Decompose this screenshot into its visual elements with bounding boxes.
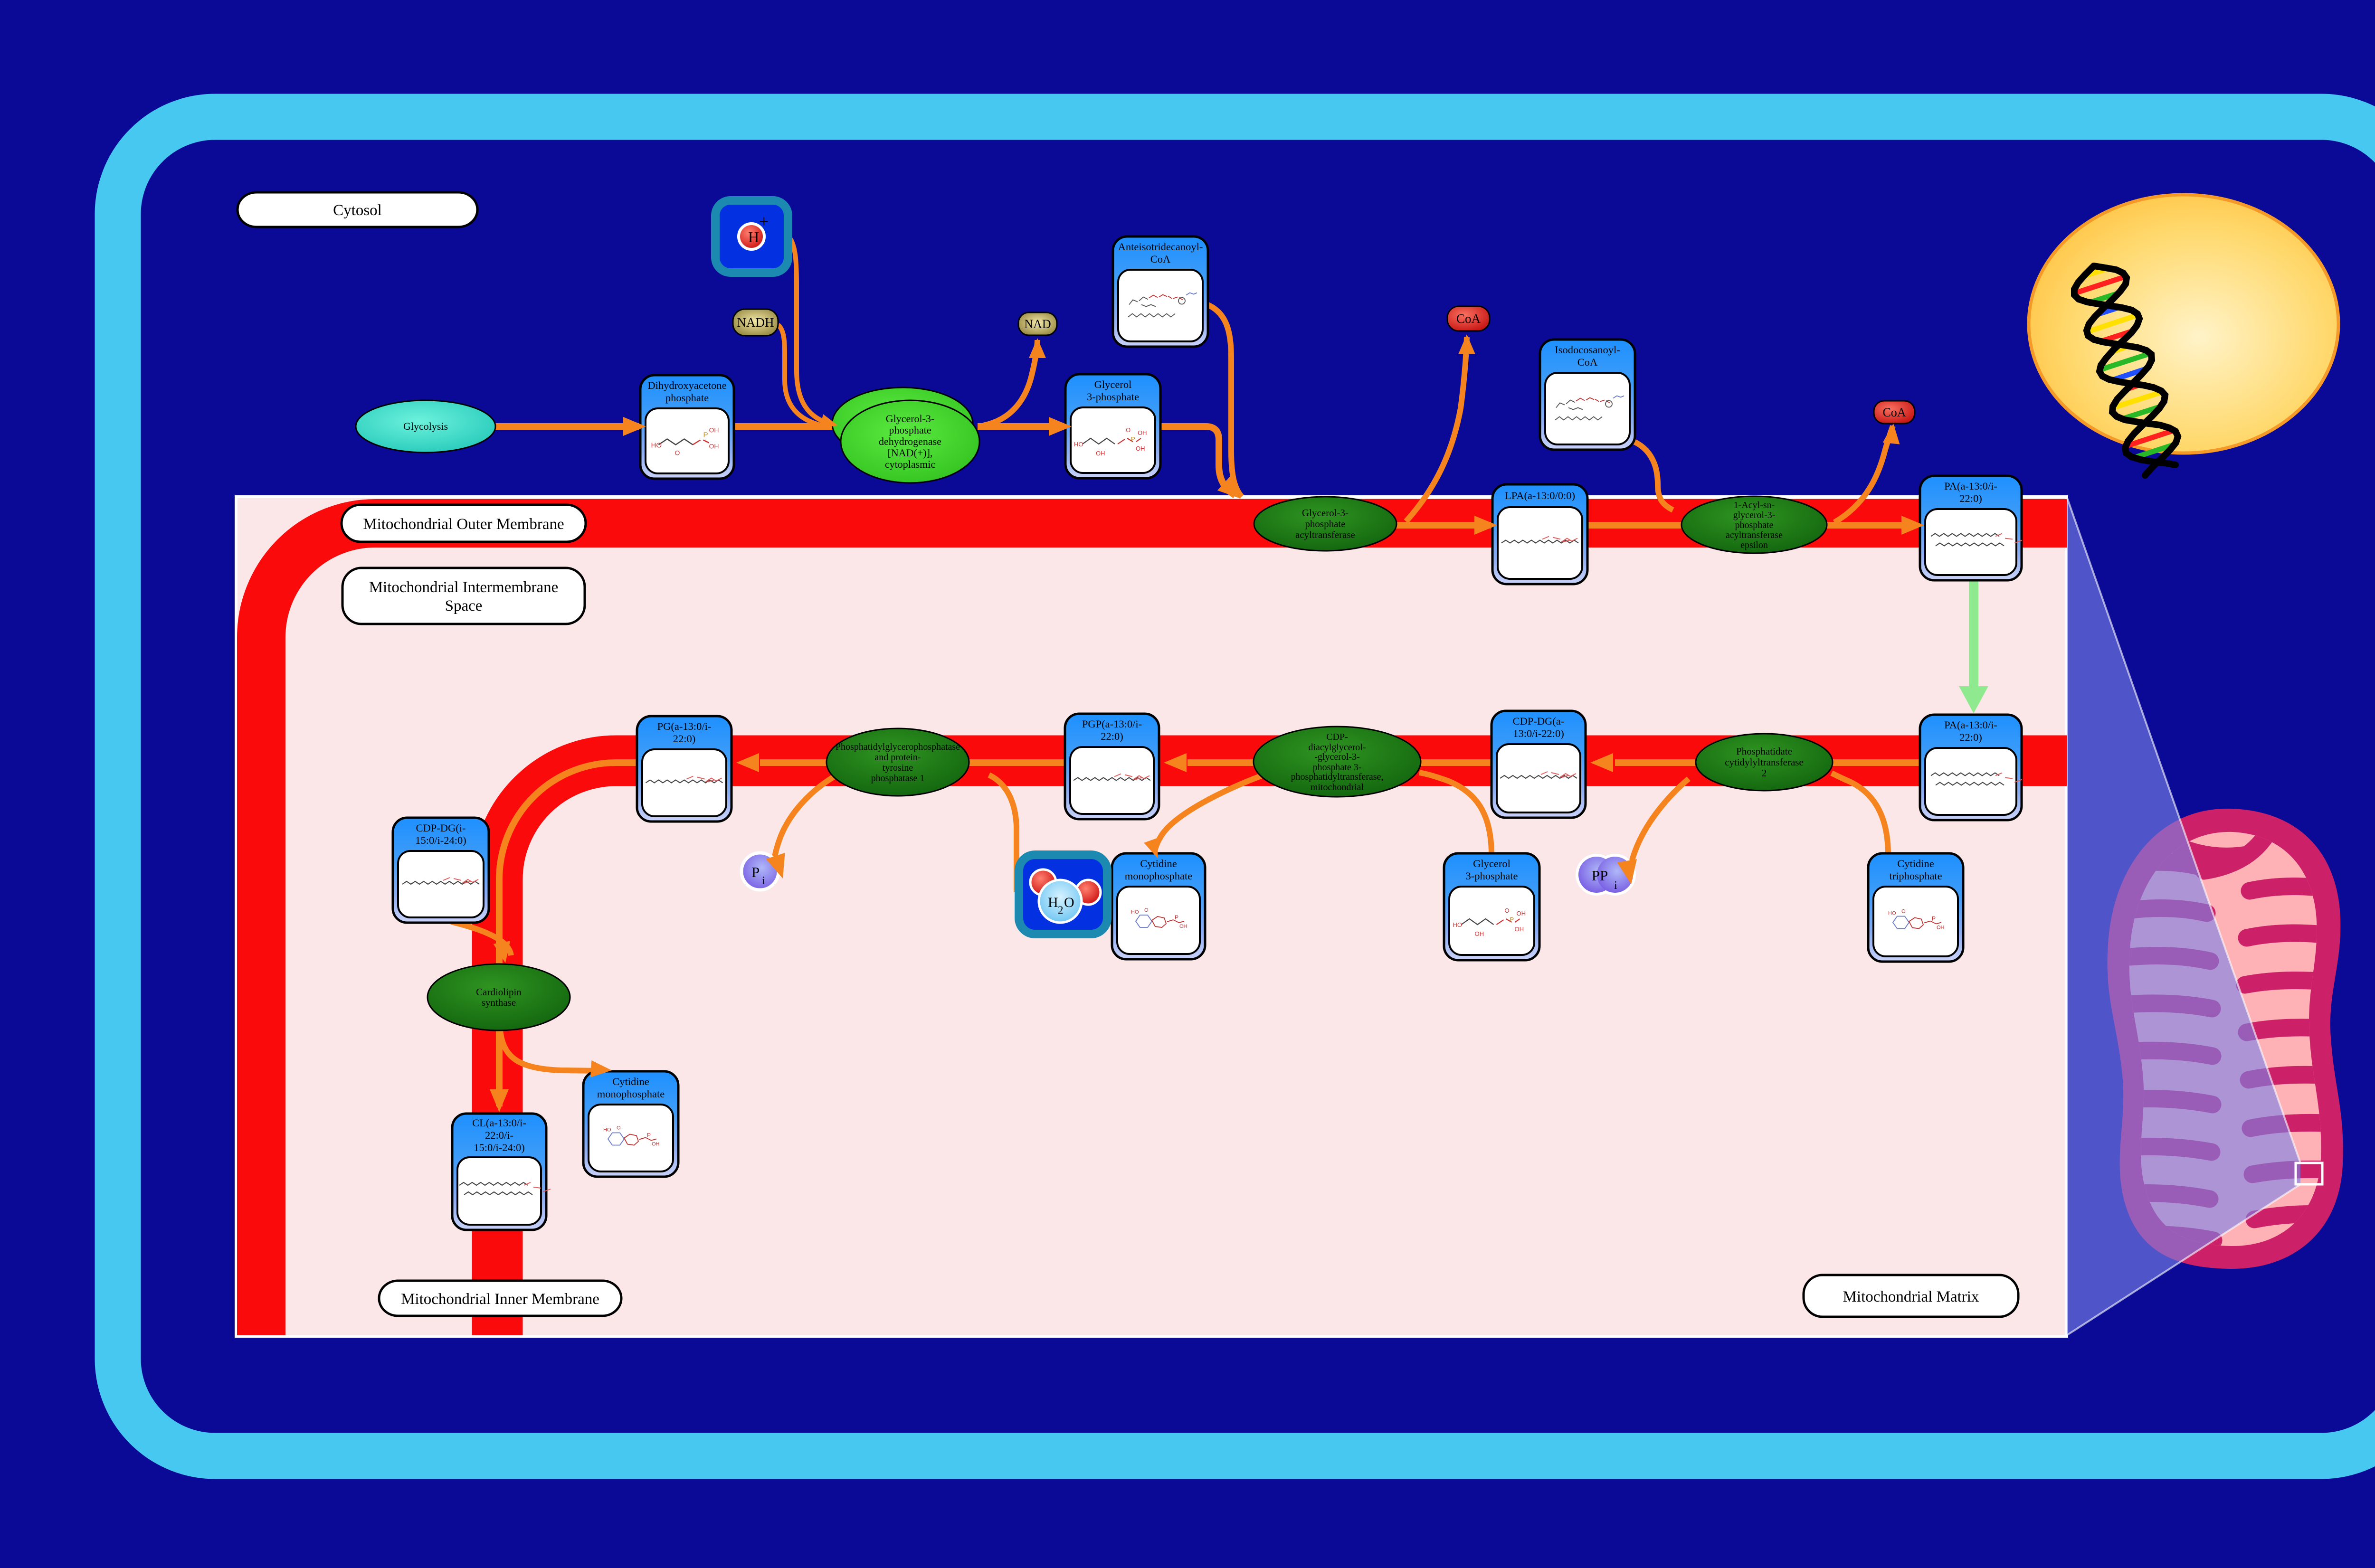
svg-text:cytidylyltransferase: cytidylyltransferase (1725, 756, 1804, 768)
svg-text:Cytosol: Cytosol (333, 202, 382, 219)
svg-text:tyrosine: tyrosine (883, 763, 913, 773)
svg-text:OH: OH (1475, 930, 1484, 937)
svg-text:Glycerol: Glycerol (1473, 858, 1510, 869)
svg-text:cytoplasmic: cytoplasmic (885, 458, 936, 470)
svg-text:PA(a-13:0/i-: PA(a-13:0/i- (1944, 719, 1997, 731)
svg-text:PA(a-13:0/i-: PA(a-13:0/i- (1944, 480, 1997, 492)
svg-text:monophosphate: monophosphate (597, 1088, 665, 1100)
svg-text:CoA: CoA (1456, 312, 1481, 326)
svg-text:Isodocosanoyl-: Isodocosanoyl- (1555, 344, 1620, 356)
svg-text:CDP-: CDP- (1326, 732, 1348, 742)
svg-text:glycerol-3-: glycerol-3- (1733, 510, 1776, 520)
svg-text:CoA: CoA (1577, 356, 1598, 368)
svg-text:Glycolysis: Glycolysis (403, 420, 448, 432)
svg-text:HO: HO (1453, 921, 1463, 928)
svg-text:dehydrogenase: dehydrogenase (879, 435, 941, 447)
svg-text:phosphate: phosphate (889, 424, 931, 436)
svg-text:Space: Space (445, 597, 483, 614)
svg-text:CL(a-13:0/i-: CL(a-13:0/i- (472, 1117, 526, 1129)
svg-text:O: O (1064, 895, 1074, 910)
svg-text:3-phosphate: 3-phosphate (1466, 870, 1518, 882)
svg-text:mitochondrial: mitochondrial (1311, 782, 1364, 793)
svg-text:CoA: CoA (1150, 253, 1171, 265)
svg-text:PG(a-13:0/i-: PG(a-13:0/i- (657, 720, 712, 732)
svg-text:2: 2 (1762, 767, 1767, 779)
svg-text:O: O (675, 449, 680, 457)
svg-text:P: P (1131, 435, 1135, 443)
svg-text:P: P (751, 864, 760, 880)
svg-text:H: H (748, 228, 759, 246)
svg-text:acyltransferase: acyltransferase (1726, 530, 1783, 540)
svg-text:OH: OH (709, 443, 719, 450)
svg-text:i: i (1614, 879, 1617, 892)
svg-text:[NAD(+)],: [NAD(+)], (888, 447, 933, 459)
svg-text:epsilon: epsilon (1740, 540, 1768, 550)
svg-text:Mitochondrial Outer Membrane: Mitochondrial Outer Membrane (363, 516, 564, 533)
svg-text:phosphate 3-: phosphate 3- (1313, 762, 1362, 773)
svg-text:phosphate: phosphate (1735, 520, 1773, 530)
svg-text:HO: HO (1074, 441, 1083, 448)
svg-text:22:0): 22:0) (1959, 492, 1982, 504)
svg-text:phosphatase 1: phosphatase 1 (871, 773, 925, 784)
svg-text:HO: HO (651, 442, 662, 450)
svg-text:15:0/i-24:0): 15:0/i-24:0) (415, 834, 466, 846)
svg-text:2: 2 (1058, 904, 1064, 916)
svg-text:acyltransferase: acyltransferase (1295, 529, 1355, 540)
svg-text:Glycerol-3-: Glycerol-3- (1302, 507, 1349, 519)
svg-text:Glycerol-3-: Glycerol-3- (886, 413, 935, 425)
svg-text:-glycerol-3-: -glycerol-3- (1314, 752, 1360, 762)
svg-text:LPA(a-13:0/0:0): LPA(a-13:0/0:0) (1505, 490, 1575, 501)
svg-text:O: O (1505, 907, 1510, 914)
svg-text:OH: OH (1517, 910, 1526, 917)
svg-text:15:0/i-24:0): 15:0/i-24:0) (474, 1142, 525, 1153)
svg-text:22:0): 22:0) (673, 733, 696, 745)
svg-text:OH: OH (1138, 429, 1147, 436)
svg-text:Cytidine: Cytidine (612, 1076, 649, 1087)
svg-text:22:0): 22:0) (1959, 731, 1982, 743)
svg-text:NADH: NADH (737, 315, 774, 330)
svg-text:OH: OH (1515, 926, 1524, 933)
svg-text:Phosphatidylglycerophosphatase: Phosphatidylglycerophosphatase (836, 742, 960, 752)
svg-text:Dihydroxyacetone: Dihydroxyacetone (647, 379, 726, 391)
svg-text:P: P (703, 431, 708, 439)
svg-text:and protein-: and protein- (874, 752, 921, 763)
svg-text:OH: OH (1136, 445, 1145, 452)
svg-text:Phosphatidate: Phosphatidate (1736, 746, 1792, 757)
svg-text:Mitochondrial Matrix: Mitochondrial Matrix (1843, 1288, 1979, 1305)
svg-text:triphosphate: triphosphate (1889, 870, 1942, 882)
svg-text:phosphate: phosphate (665, 392, 709, 404)
svg-text:OH: OH (709, 426, 719, 434)
svg-text:PGP(a-13:0/i-: PGP(a-13:0/i- (1082, 718, 1142, 730)
svg-text:NAD: NAD (1024, 317, 1051, 331)
svg-text:3-phosphate: 3-phosphate (1087, 391, 1139, 403)
svg-text:synthase: synthase (482, 997, 516, 1008)
svg-text:Anteisotridecanoyl-: Anteisotridecanoyl- (1118, 241, 1203, 253)
svg-text:diacylglycerol-: diacylglycerol- (1308, 742, 1366, 753)
svg-text:Cytidine: Cytidine (1140, 858, 1177, 869)
svg-text:P: P (1510, 916, 1514, 923)
svg-text:phosphate: phosphate (1305, 518, 1345, 529)
svg-text:+: + (759, 212, 769, 231)
svg-text:O: O (1126, 426, 1130, 434)
svg-text:CDP-DG(a-: CDP-DG(a- (1513, 715, 1565, 727)
svg-text:PP: PP (1592, 867, 1608, 884)
svg-text:phosphatidyltransferase,: phosphatidyltransferase, (1291, 772, 1384, 782)
svg-text:monophosphate: monophosphate (1125, 870, 1192, 882)
svg-text:CDP-DG(i-: CDP-DG(i- (416, 822, 466, 834)
svg-text:Glycerol: Glycerol (1094, 378, 1132, 390)
svg-text:Cardiolipin: Cardiolipin (476, 986, 522, 998)
svg-text:OH: OH (1096, 450, 1105, 457)
svg-text:Mitochondrial Intermembrane: Mitochondrial Intermembrane (369, 579, 559, 596)
svg-text:CoA: CoA (1882, 406, 1906, 419)
svg-text:Mitochondrial Inner Membrane: Mitochondrial Inner Membrane (401, 1291, 599, 1308)
svg-text:i: i (762, 875, 765, 887)
svg-text:H: H (1048, 895, 1058, 910)
svg-text:22:0/i-: 22:0/i- (485, 1129, 513, 1141)
svg-text:1-Acyl-sn-: 1-Acyl-sn- (1734, 500, 1775, 510)
svg-text:Cytidine: Cytidine (1897, 858, 1934, 869)
svg-text:13:0/i-22:0): 13:0/i-22:0) (1513, 727, 1564, 739)
svg-text:22:0): 22:0) (1101, 730, 1123, 742)
